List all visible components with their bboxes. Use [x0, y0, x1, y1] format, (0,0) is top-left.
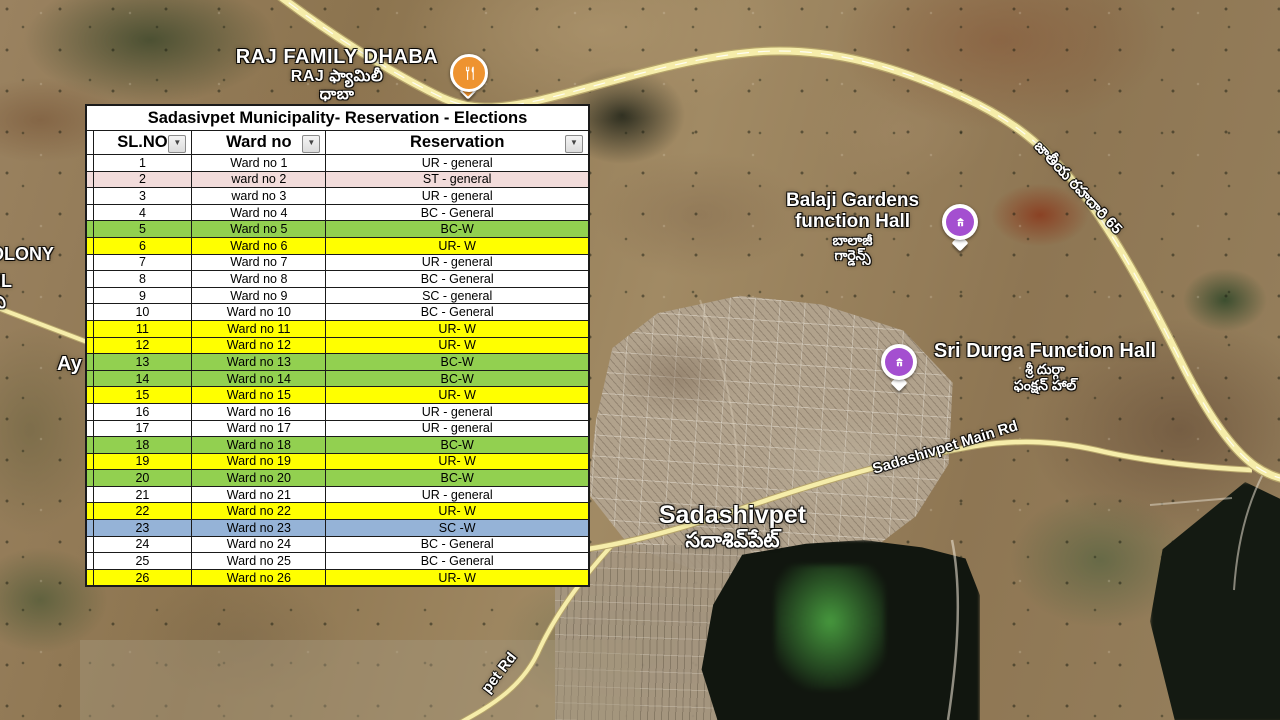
filter-button-reservation[interactable]: ▼	[565, 135, 583, 153]
cell-sliver	[86, 320, 93, 337]
cell-slno: 2	[93, 171, 192, 188]
cell-ward: Ward no 17	[192, 420, 326, 437]
restaurant-pin-balloon[interactable]	[450, 54, 488, 92]
cell-slno: 21	[93, 486, 192, 503]
table-row: 8 Ward no 8 BC - General	[86, 271, 589, 288]
cell-ward: Ward no 4	[192, 204, 326, 221]
cell-ward: Ward no 24	[192, 536, 326, 553]
cell-slno: 14	[93, 370, 192, 387]
balaji-telugu-2: గార్డెన్స్	[770, 248, 935, 264]
cell-sliver	[86, 237, 93, 254]
table-title: Sadasivpet Municipality- Reservation - E…	[86, 105, 589, 131]
cell-sliver	[86, 520, 93, 537]
cell-sliver	[86, 503, 93, 520]
cell-sliver	[86, 437, 93, 454]
cell-slno: 16	[93, 403, 192, 420]
cell-slno: 18	[93, 437, 192, 454]
cell-slno: 25	[93, 553, 192, 570]
cell-ward: Ward no 11	[192, 320, 326, 337]
cell-ward: Ward no 8	[192, 271, 326, 288]
cell-sliver	[86, 254, 93, 271]
dhaba-name-telugu: RAJ ఫ్యామిలీ	[232, 68, 442, 86]
cell-reservation: UR - general	[326, 486, 589, 503]
balaji-line1[interactable]: Balaji Gardens	[770, 190, 935, 211]
field-road-2	[1150, 498, 1232, 505]
cell-sliver	[86, 470, 93, 487]
screenshot-root: RAJ FAMILY DHABA RAJ ఫ్యామిలీ ధాబా Balaj…	[0, 0, 1280, 720]
cell-sliver	[86, 370, 93, 387]
cell-ward: ward no 3	[192, 188, 326, 205]
cell-ward: Ward no 23	[192, 520, 326, 537]
cell-slno: 10	[93, 304, 192, 321]
cell-ward: ward no 2	[192, 171, 326, 188]
cell-ward: Ward no 5	[192, 221, 326, 238]
town-name[interactable]: Sadashivpet	[640, 501, 825, 529]
reservation-table: Sadasivpet Municipality- Reservation - E…	[85, 104, 590, 587]
cell-slno: 5	[93, 221, 192, 238]
table-row: 19 Ward no 19 UR- W	[86, 453, 589, 470]
cell-reservation: UR- W	[326, 320, 589, 337]
cell-ward: Ward no 18	[192, 437, 326, 454]
cell-reservation: BC - General	[326, 271, 589, 288]
cell-ward: Ward no 6	[192, 237, 326, 254]
cell-slno: 9	[93, 287, 192, 304]
table-row: 6 Ward no 6 UR- W	[86, 237, 589, 254]
cell-ward: Ward no 22	[192, 503, 326, 520]
cell-reservation: UR- W	[326, 237, 589, 254]
table-row: 11 Ward no 11 UR- W	[86, 320, 589, 337]
cell-sliver	[86, 204, 93, 221]
cell-reservation: BC-W	[326, 370, 589, 387]
cell-reservation: UR- W	[326, 569, 589, 586]
cell-sliver	[86, 403, 93, 420]
table-row: 2 ward no 2 ST - general	[86, 171, 589, 188]
cell-slno: 4	[93, 204, 192, 221]
cell-sliver	[86, 536, 93, 553]
cell-ward: Ward no 10	[192, 304, 326, 321]
cell-reservation: UR - general	[326, 254, 589, 271]
cell-slno: 13	[93, 354, 192, 371]
event-venue-icon	[946, 208, 974, 236]
cell-ward: Ward no 1	[192, 155, 326, 172]
event-venue-icon	[885, 348, 913, 376]
durga-telugu-2: ఫంక్షన్ హాల్	[930, 378, 1160, 394]
cell-ward: Ward no 16	[192, 403, 326, 420]
table-row: 15 Ward no 15 UR- W	[86, 387, 589, 404]
town-label-sadashivpet[interactable]: Sadashivpet సదాశివ్‌పేట్	[640, 501, 825, 553]
table-row: 4 Ward no 4 BC - General	[86, 204, 589, 221]
table-header-row: SL.NO ▼ Ward no ▼ Reservation ▼	[86, 131, 589, 155]
cell-sliver	[86, 171, 93, 188]
pin-balloon[interactable]	[881, 344, 917, 380]
durga-line1[interactable]: Sri Durga Function Hall	[930, 340, 1160, 362]
filter-button-ward[interactable]: ▼	[302, 135, 320, 153]
filter-button-slno[interactable]: ▼	[168, 135, 186, 153]
table-row: 10 Ward no 10 BC - General	[86, 304, 589, 321]
cell-reservation: BC - General	[326, 204, 589, 221]
cell-slno: 11	[93, 320, 192, 337]
cell-ward: Ward no 19	[192, 453, 326, 470]
cell-reservation: UR- W	[326, 387, 589, 404]
header-ward-label: Ward no	[226, 133, 291, 151]
cell-sliver	[86, 155, 93, 172]
cell-reservation: BC - General	[326, 553, 589, 570]
table-row: 23 Ward no 23 SC -W	[86, 520, 589, 537]
header-ward: Ward no ▼	[192, 131, 326, 155]
poi-label-balaji-gardens[interactable]: Balaji Gardens function Hall బాలాజీ గార్…	[770, 190, 935, 264]
cell-reservation: UR - general	[326, 188, 589, 205]
cell-sliver	[86, 354, 93, 371]
cell-reservation: BC-W	[326, 221, 589, 238]
cell-slno: 12	[93, 337, 192, 354]
cell-sliver	[86, 188, 93, 205]
cell-reservation: BC-W	[326, 354, 589, 371]
durga-telugu-1: శ్రీ దుర్గా	[930, 362, 1160, 378]
cell-slno: 3	[93, 188, 192, 205]
cell-reservation: UR - general	[326, 420, 589, 437]
cell-ward: Ward no 15	[192, 387, 326, 404]
dhaba-name-telugu-2: ధాబా	[232, 86, 442, 104]
label-colony-partial: OLONY	[0, 244, 60, 264]
cell-ward: Ward no 13	[192, 354, 326, 371]
table-row: 7 Ward no 7 UR - general	[86, 254, 589, 271]
table-row: 25 Ward no 25 BC - General	[86, 553, 589, 570]
dhaba-name[interactable]: RAJ FAMILY DHABA	[232, 46, 442, 68]
cell-slno: 20	[93, 470, 192, 487]
table-row: 18 Ward no 18 BC-W	[86, 437, 589, 454]
balaji-line2[interactable]: function Hall	[770, 211, 935, 232]
header-slno-label: SL.NO	[117, 133, 167, 151]
cell-sliver	[86, 486, 93, 503]
cell-reservation: BC - General	[326, 536, 589, 553]
label-ml-partial: ML	[0, 271, 26, 291]
header-reservation-label: Reservation	[410, 133, 504, 151]
table-row: 16 Ward no 16 UR - general	[86, 403, 589, 420]
balaji-gardens-pin[interactable]	[941, 204, 979, 252]
restaurant-pin[interactable]	[449, 54, 487, 102]
cell-ward: Ward no 12	[192, 337, 326, 354]
table-row: 17 Ward no 17 UR - general	[86, 420, 589, 437]
cell-ward: Ward no 21	[192, 486, 326, 503]
cell-slno: 17	[93, 420, 192, 437]
cell-slno: 8	[93, 271, 192, 288]
cell-reservation: BC-W	[326, 470, 589, 487]
pin-balloon[interactable]	[942, 204, 978, 240]
cell-sliver	[86, 569, 93, 586]
cell-slno: 22	[93, 503, 192, 520]
balaji-telugu-1: బాలాజీ	[770, 233, 935, 249]
table-title-row: Sadasivpet Municipality- Reservation - E…	[86, 105, 589, 131]
cell-ward: Ward no 20	[192, 470, 326, 487]
town-name-telugu: సదాశివ్‌పేట్	[640, 529, 825, 553]
cell-reservation: UR - general	[326, 403, 589, 420]
cell-reservation: UR- W	[326, 453, 589, 470]
reservation-table-body: Sadasivpet Municipality- Reservation - E…	[86, 105, 589, 586]
header-sliver	[86, 131, 93, 155]
table-row: 3 ward no 3 UR - general	[86, 188, 589, 205]
cell-reservation: ST - general	[326, 171, 589, 188]
cell-slno: 1	[93, 155, 192, 172]
cell-slno: 6	[93, 237, 192, 254]
field-road-1	[1234, 474, 1263, 590]
cell-slno: 7	[93, 254, 192, 271]
cell-reservation: UR - general	[326, 155, 589, 172]
cell-sliver	[86, 221, 93, 238]
cell-reservation: UR- W	[326, 503, 589, 520]
label-telugu-partial: ని	[0, 293, 24, 312]
table-row: 9 Ward no 9 SC - general	[86, 287, 589, 304]
table-row: 24 Ward no 24 BC - General	[86, 536, 589, 553]
table-row: 14 Ward no 14 BC-W	[86, 370, 589, 387]
cell-reservation: BC-W	[326, 437, 589, 454]
cell-reservation: BC - General	[326, 304, 589, 321]
cell-sliver	[86, 287, 93, 304]
poi-label-raj-family-dhaba[interactable]: RAJ FAMILY DHABA RAJ ఫ్యామిలీ ధాబా	[232, 46, 442, 104]
lake-bund-road	[948, 540, 958, 720]
cell-sliver	[86, 453, 93, 470]
cell-reservation: UR- W	[326, 337, 589, 354]
cell-sliver	[86, 387, 93, 404]
sri-durga-pin[interactable]	[880, 344, 918, 392]
table-row: 5 Ward no 5 BC-W	[86, 221, 589, 238]
cell-slno: 26	[93, 569, 192, 586]
table-row: 12 Ward no 12 UR- W	[86, 337, 589, 354]
cell-ward: Ward no 25	[192, 553, 326, 570]
cell-slno: 23	[93, 520, 192, 537]
cell-ward: Ward no 9	[192, 287, 326, 304]
cell-slno: 19	[93, 453, 192, 470]
table-row: 21 Ward no 21 UR - general	[86, 486, 589, 503]
table-row: 13 Ward no 13 BC-W	[86, 354, 589, 371]
table-row: 1 Ward no 1 UR - general	[86, 155, 589, 172]
cell-sliver	[86, 420, 93, 437]
poi-label-sri-durga[interactable]: Sri Durga Function Hall శ్రీ దుర్గా ఫంక్…	[930, 340, 1160, 394]
cell-slno: 24	[93, 536, 192, 553]
cell-sliver	[86, 553, 93, 570]
table-row: 26 Ward no 26 UR- W	[86, 569, 589, 586]
cell-ward: Ward no 7	[192, 254, 326, 271]
table-row: 20 Ward no 20 BC-W	[86, 470, 589, 487]
cell-ward: Ward no 14	[192, 370, 326, 387]
header-slno: SL.NO ▼	[93, 131, 192, 155]
header-reservation: Reservation ▼	[326, 131, 589, 155]
cell-reservation: SC -W	[326, 520, 589, 537]
cell-reservation: SC - general	[326, 287, 589, 304]
cell-sliver	[86, 337, 93, 354]
cell-ward: Ward no 26	[192, 569, 326, 586]
cell-sliver	[86, 271, 93, 288]
cell-slno: 15	[93, 387, 192, 404]
cell-sliver	[86, 304, 93, 321]
fork-knife-icon	[461, 65, 478, 82]
table-row: 22 Ward no 22 UR- W	[86, 503, 589, 520]
